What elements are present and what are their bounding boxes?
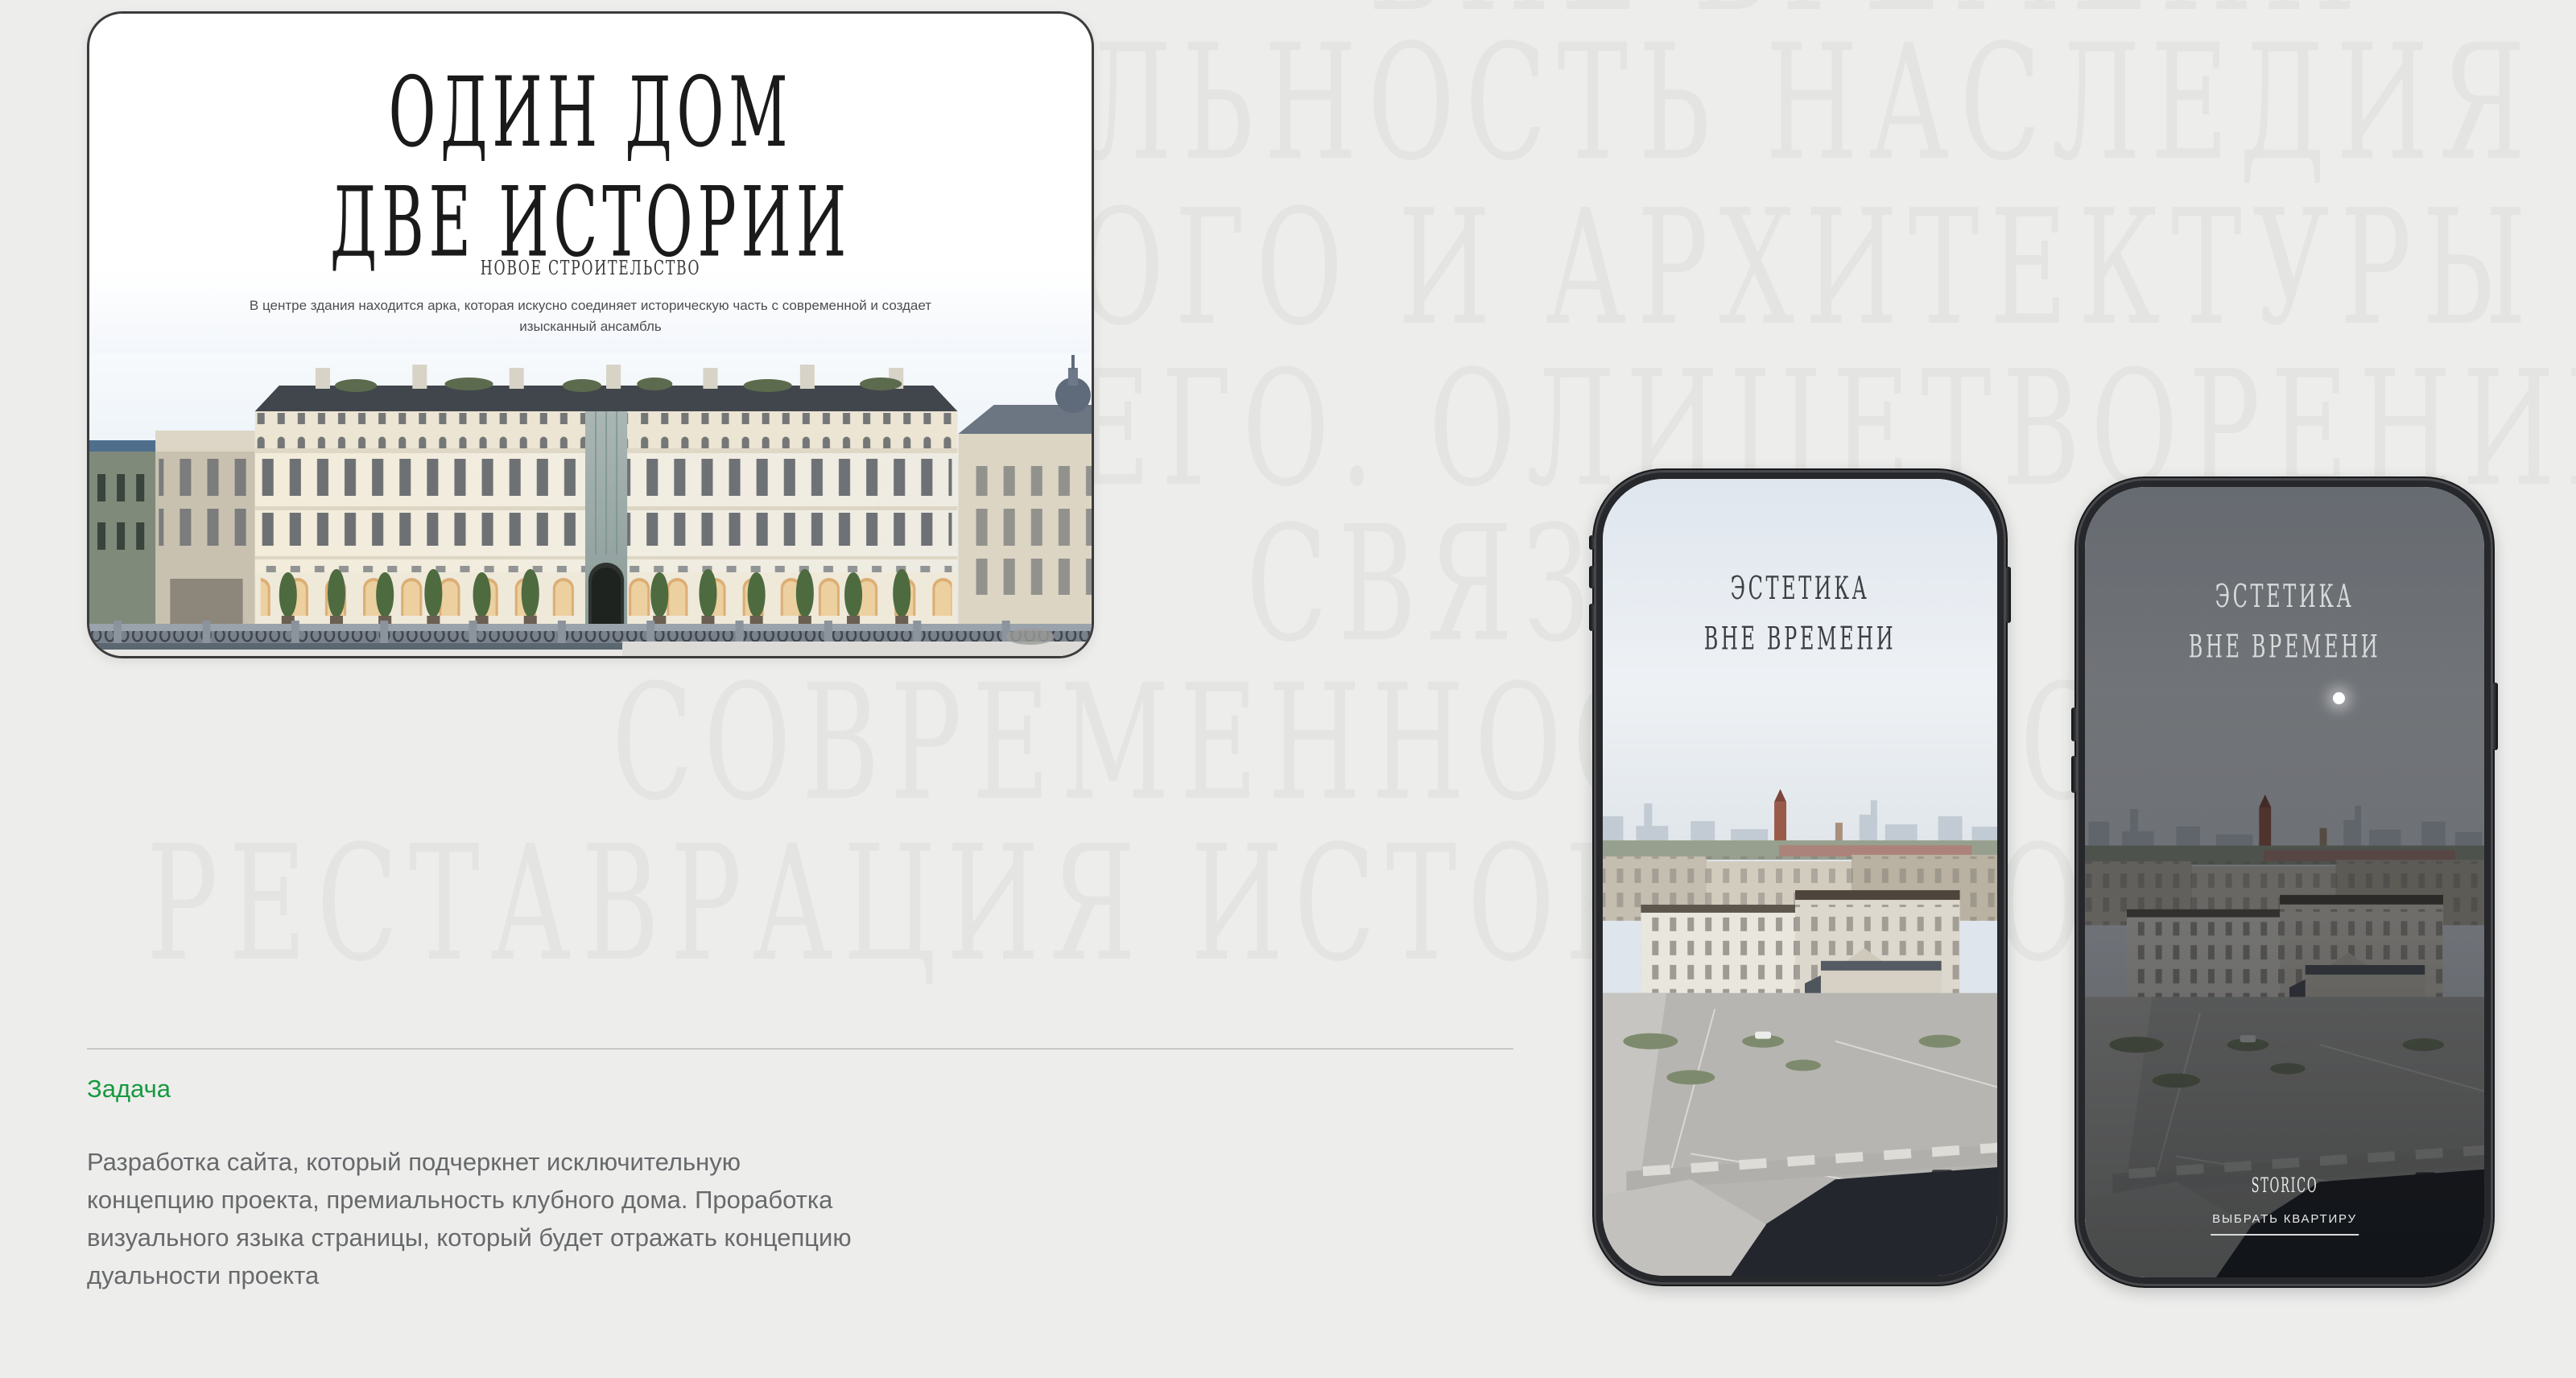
section-divider: [87, 1048, 1513, 1050]
screen-title-line1: ЭСТЕТИКА: [2125, 572, 2445, 622]
screen-title: ЭСТЕТИКА ВНЕ ВРЕМЕНИ: [1642, 564, 1958, 665]
map-point-marker: [2333, 692, 2345, 704]
volume-down-button: [1589, 604, 1594, 631]
hero-title-line1: ОДИН ДОМ: [200, 59, 981, 168]
screen-title-line1: ЭСТЕТИКА: [1642, 564, 1958, 614]
hero-description-line2: изысканный ансамбль: [89, 316, 1092, 337]
watermark-line: ЛЬНОСТЬ НАСЛЕДИЯ: [1083, 11, 2536, 196]
mute-switch: [1589, 535, 1594, 550]
task-line: визуального языка страницы, который буде…: [87, 1219, 1005, 1256]
hero-description-line1: В центре здания находится арка, которая …: [89, 295, 1092, 316]
screen-title: ЭСТЕТИКА ВНЕ ВРЕМЕНИ: [2125, 572, 2445, 673]
phone-mockup-dark: ЭСТЕТИКА ВНЕ ВРЕМЕНИ STORICO ВЫБРАТЬ КВА…: [2074, 477, 2495, 1288]
task-line: Разработка сайта, который подчеркнет иск…: [87, 1143, 1005, 1181]
storico-logo: STORICO: [2140, 1173, 2428, 1197]
screen-title-line2: ВНЕ ВРЕМЕНИ: [2125, 622, 2445, 672]
phone-screen-dark: ЭСТЕТИКА ВНЕ ВРЕМЕНИ STORICO ВЫБРАТЬ КВА…: [2085, 487, 2484, 1277]
task-heading: Задача: [87, 1075, 171, 1104]
building-render-illustration: [89, 353, 1092, 656]
volume-down-button: [2071, 756, 2076, 793]
power-button: [2006, 567, 2011, 623]
screen-title-line2: ВНЕ ВРЕМЕНИ: [1642, 614, 1958, 664]
phone-screen-light: ЭСТЕТИКА ВНЕ ВРЕМЕНИ: [1603, 479, 1997, 1276]
phone-mockup-light: ЭСТЕТИКА ВНЕ ВРЕМЕНИ: [1592, 468, 2008, 1286]
hero-description: В центре здания находится арка, которая …: [89, 295, 1092, 337]
power-button: [2493, 683, 2498, 750]
volume-up-button: [1589, 566, 1594, 588]
choose-apartment-button[interactable]: ВЫБРАТЬ КВАРТИРУ: [2211, 1212, 2359, 1236]
watermark-line: ОГО И АРХИТЕКТУРЫ: [1077, 176, 2537, 361]
hero-title: ОДИН ДОМ ДВЕ ИСТОРИИ: [200, 59, 981, 278]
task-line: дуальности проекта: [87, 1256, 1005, 1294]
hero-website-card: ОДИН ДОМ ДВЕ ИСТОРИИ НОВОЕ СТРОИТЕЛЬСТВО…: [87, 11, 1094, 658]
volume-up-button: [2071, 708, 2076, 741]
hero-badge: НОВОЕ СТРОИТЕЛЬСТВО: [180, 257, 1001, 279]
task-description: Разработка сайта, который подчеркнет иск…: [87, 1143, 1005, 1294]
task-line: концепцию проекта, премиальность клубног…: [87, 1181, 1005, 1219]
